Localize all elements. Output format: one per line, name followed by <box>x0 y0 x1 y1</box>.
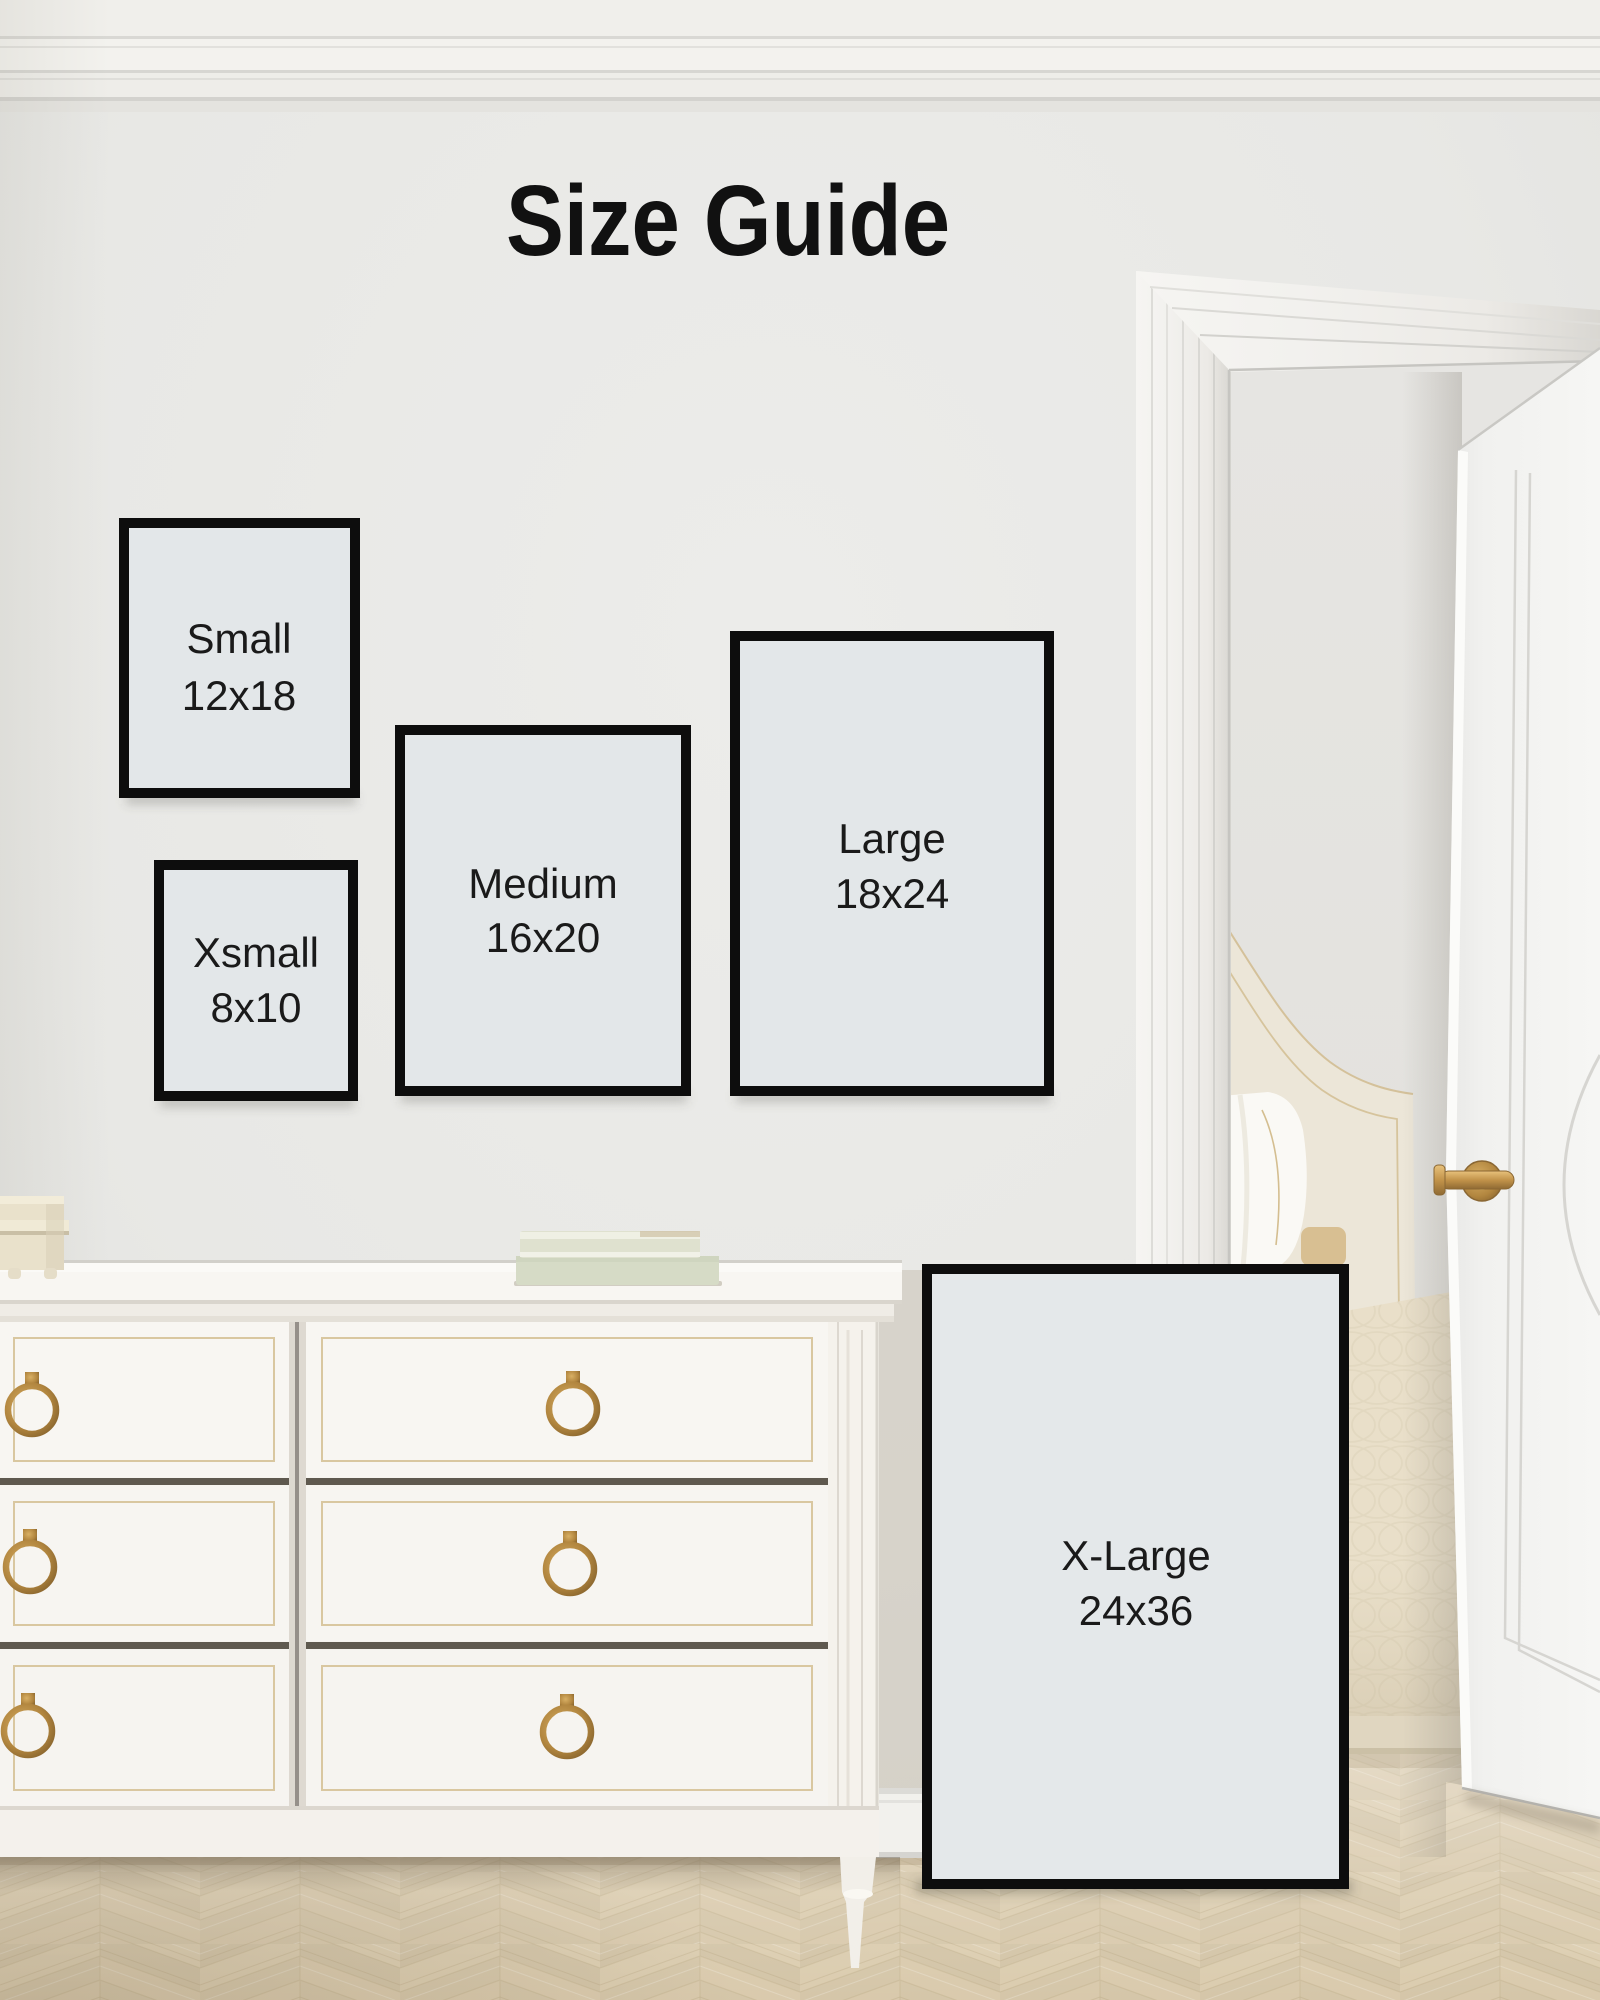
svg-text:16x20: 16x20 <box>486 914 600 961</box>
svg-text:18x24: 18x24 <box>835 870 949 917</box>
svg-text:X-Large: X-Large <box>1061 1532 1210 1579</box>
svg-text:Xsmall: Xsmall <box>193 929 319 976</box>
svg-text:12x18: 12x18 <box>182 672 296 719</box>
svg-text:Large: Large <box>838 815 945 862</box>
svg-text:24x36: 24x36 <box>1079 1587 1193 1634</box>
svg-text:Small: Small <box>186 615 291 662</box>
svg-text:Size Guide: Size Guide <box>506 165 950 277</box>
svg-text:Medium: Medium <box>468 860 617 907</box>
svg-text:8x10: 8x10 <box>210 984 301 1031</box>
